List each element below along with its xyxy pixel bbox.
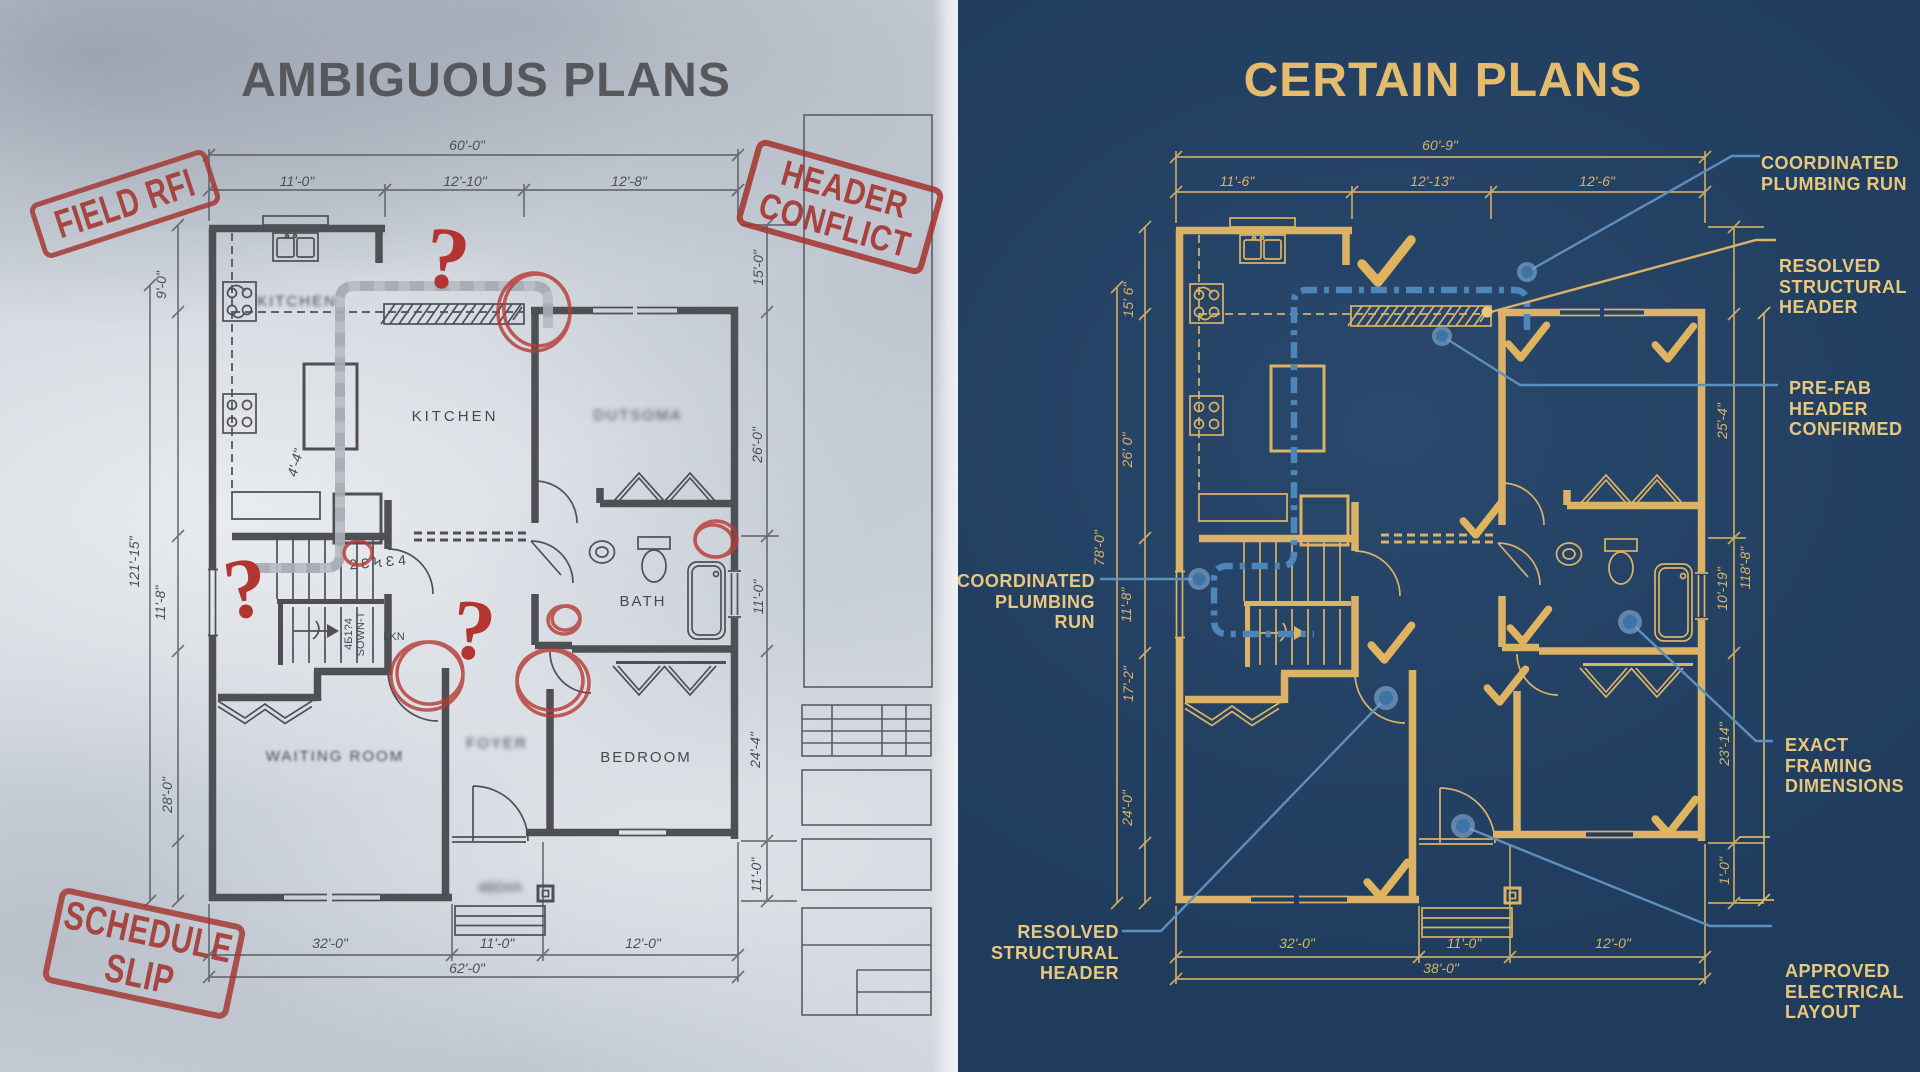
svg-text:60'-9": 60'-9" [1422,137,1459,153]
svg-text:11'-8": 11'-8" [1118,587,1134,623]
svg-text:60'-0": 60'-0" [449,137,486,153]
svg-text:15'-0": 15'-0" [750,249,766,286]
svg-text:11'-6": 11'-6" [1220,173,1256,189]
svg-text:12'-0": 12'-0" [1595,935,1632,951]
svg-text:LKN: LKN [383,631,404,643]
svg-text:DUTSOMA: DUTSOMA [594,407,683,424]
svg-text:38'-0": 38'-0" [1423,960,1460,976]
svg-text:26' 0": 26' 0" [1119,432,1135,469]
svg-text:12'-0": 12'-0" [625,935,662,951]
svg-text:WAITING ROOM: WAITING ROOM [266,748,404,765]
svg-text:KITCHEN: KITCHEN [257,293,337,310]
svg-text:11'-0": 11'-0" [750,579,766,615]
svg-text:12'-13": 12'-13" [1410,173,1454,189]
svg-text:11'-0": 11'-0" [748,857,764,893]
svg-text:1'-0": 1'-0" [1716,856,1732,885]
svg-text:KITCHEN: KITCHEN [412,408,499,425]
svg-text:32'-0": 32'-0" [312,935,349,951]
svg-text:118'-8": 118'-8" [1737,546,1753,589]
svg-text:4Б1?4: 4Б1?4 [343,618,355,650]
svg-text:121'-15": 121'-15" [126,535,142,587]
svg-text:9'-0": 9'-0" [153,270,169,299]
svg-text:BEDROOM: BEDROOM [600,749,692,766]
svg-text:FOYER: FOYER [466,735,528,752]
svg-text:17'-2": 17'-2" [1120,665,1136,702]
svg-text:26'-0": 26'-0" [749,426,765,464]
svg-text:4BD#A: 4BD#A [478,879,523,895]
svg-text:24'-4": 24'-4" [747,731,763,769]
svg-text:25'-4": 25'-4" [1714,402,1730,440]
svg-text:SOWN-T: SOWN-T [355,611,367,656]
svg-text:BATH: BATH [620,593,667,610]
svg-text:10'-19": 10'-19" [1714,566,1730,610]
svg-text:32'-0": 32'-0" [1279,935,1316,951]
svg-text:11'-0": 11'-0" [480,935,516,951]
svg-text:62'-0": 62'-0" [449,960,486,976]
svg-text:11'-0": 11'-0" [1447,935,1483,951]
svg-text:15' 6": 15' 6" [1120,282,1136,318]
svg-text:23'-14": 23'-14" [1716,721,1732,766]
svg-text:78'-0": 78'-0" [1091,529,1107,566]
svg-text:24'-0": 24'-0" [1119,789,1135,827]
svg-text:11'-8": 11'-8" [152,585,168,621]
svg-text:12'-6": 12'-6" [1579,173,1616,189]
svg-text:11'-0": 11'-0" [280,173,316,189]
svg-text:4'-4": 4'-4" [284,446,307,478]
svg-text:28'-0": 28'-0" [159,776,175,814]
svg-text:12'-8": 12'-8" [611,173,648,189]
svg-text:12'-10": 12'-10" [443,173,487,189]
